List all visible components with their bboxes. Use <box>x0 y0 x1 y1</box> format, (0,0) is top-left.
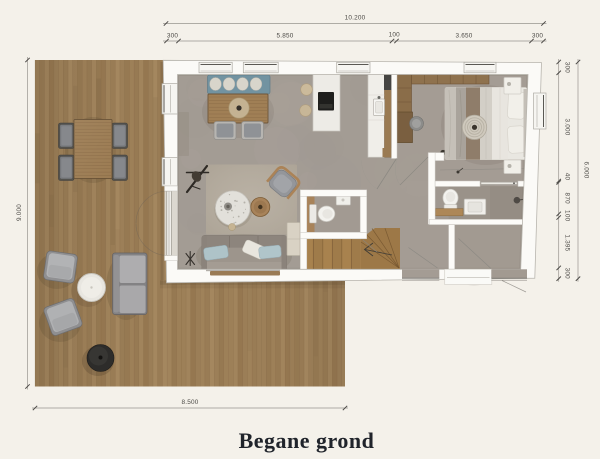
svg-text:8.500: 8.500 <box>182 399 199 406</box>
svg-text:3.650: 3.650 <box>456 33 473 40</box>
svg-text:1.395: 1.395 <box>564 234 571 251</box>
svg-text:300: 300 <box>167 33 179 40</box>
svg-text:100: 100 <box>564 210 571 222</box>
svg-text:100: 100 <box>389 31 401 38</box>
svg-text:Begane grond: Begane grond <box>239 428 375 453</box>
svg-text:300: 300 <box>564 268 571 280</box>
svg-text:10.200: 10.200 <box>345 15 366 22</box>
svg-text:300: 300 <box>564 62 571 74</box>
svg-text:870: 870 <box>564 193 571 205</box>
svg-text:300: 300 <box>532 33 544 40</box>
svg-text:40: 40 <box>564 173 571 181</box>
svg-text:3.000: 3.000 <box>564 119 571 136</box>
svg-text:5.850: 5.850 <box>277 33 294 40</box>
svg-text:9.000: 9.000 <box>16 204 23 221</box>
svg-text:6.000: 6.000 <box>583 162 590 179</box>
